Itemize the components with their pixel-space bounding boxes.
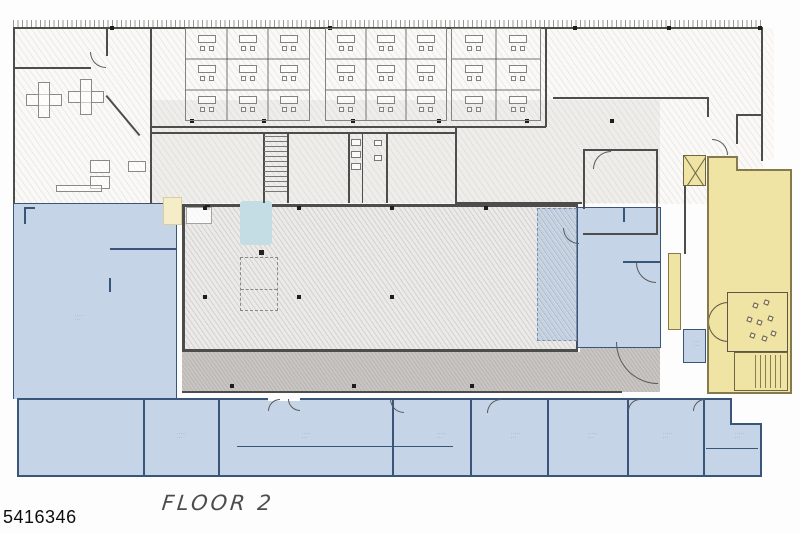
wall-segment xyxy=(456,202,582,204)
cubicle-cell xyxy=(186,90,227,120)
bottom-blue-suites xyxy=(17,399,762,477)
desk-icon xyxy=(377,96,395,104)
chair-icon xyxy=(241,46,246,51)
column-dot xyxy=(297,206,301,210)
column-dot xyxy=(610,119,614,123)
stair-tread xyxy=(264,161,287,162)
wall-segment xyxy=(348,132,350,203)
desk-icon xyxy=(377,35,395,43)
column-dot xyxy=(390,206,394,210)
chair-icon xyxy=(428,46,433,51)
cubicle-cell xyxy=(406,29,446,59)
chair-icon xyxy=(467,76,472,81)
yellow-wall-segment xyxy=(790,169,792,394)
partition-wall xyxy=(17,475,762,477)
wall-segment xyxy=(386,132,388,203)
desk-icon xyxy=(465,35,483,43)
furniture-icon xyxy=(56,185,102,192)
partition-wall xyxy=(110,248,177,250)
wall-segment xyxy=(583,149,585,209)
stair-tread xyxy=(264,166,287,167)
chair-icon xyxy=(476,46,481,51)
restroom-fixture-icon xyxy=(351,139,361,146)
wall-segment xyxy=(684,186,686,254)
wall-segment xyxy=(583,233,658,235)
stair-tread xyxy=(264,181,287,182)
wall-segment xyxy=(553,97,709,99)
chair-icon xyxy=(379,107,384,112)
furniture-icon xyxy=(90,160,110,173)
wall-segment xyxy=(583,149,658,151)
yellow-wall-segment xyxy=(707,156,709,394)
wall-segment xyxy=(13,27,15,203)
desk-icon xyxy=(377,65,395,73)
desk-icon xyxy=(417,96,435,104)
chair-icon xyxy=(282,107,287,112)
chair-icon xyxy=(428,107,433,112)
exterior-hatch-right xyxy=(763,28,774,160)
yellow-strip xyxy=(668,253,681,330)
chair-icon xyxy=(241,107,246,112)
stair-tread xyxy=(264,151,287,152)
chair-icon xyxy=(388,107,393,112)
chair-icon xyxy=(520,76,525,81)
column-dot xyxy=(667,26,671,30)
stair-tread xyxy=(264,141,287,142)
partition-wall xyxy=(547,400,549,476)
desk-icon xyxy=(417,35,435,43)
chair-icon xyxy=(282,46,287,51)
wall-segment xyxy=(150,126,546,128)
column-dot xyxy=(470,384,474,388)
cross-desk-icon xyxy=(68,79,104,115)
column-dot xyxy=(203,295,207,299)
stair-tread xyxy=(264,171,287,172)
column-dot xyxy=(230,384,234,388)
listing-number: 5416346 xyxy=(3,507,77,528)
wall-segment xyxy=(106,27,108,56)
partition-wall xyxy=(392,400,394,476)
partition-wall xyxy=(143,400,145,476)
chair-icon xyxy=(388,46,393,51)
chair-icon xyxy=(348,107,353,112)
desk-icon xyxy=(198,35,216,43)
chair-icon xyxy=(419,107,424,112)
partition-wall xyxy=(470,400,472,476)
chair-icon xyxy=(241,76,246,81)
wall-segment xyxy=(182,391,622,393)
chair-icon xyxy=(339,46,344,51)
chair-icon xyxy=(348,76,353,81)
chair-icon xyxy=(511,107,516,112)
partition-wall xyxy=(17,398,732,400)
chair-icon xyxy=(388,76,393,81)
partition-wall xyxy=(703,400,705,476)
chair-icon xyxy=(200,107,205,112)
wall-segment xyxy=(13,67,91,69)
cubicle-cell xyxy=(268,59,309,89)
chair-icon xyxy=(379,46,384,51)
partition-wall xyxy=(24,207,26,224)
cubicle-cell xyxy=(406,59,446,89)
stair-tread xyxy=(264,146,287,147)
desk-icon xyxy=(280,35,298,43)
chair-icon xyxy=(250,107,255,112)
desk-icon xyxy=(509,96,527,104)
desk-icon xyxy=(465,96,483,104)
cubicle-cell xyxy=(496,59,540,89)
cubicle-cell xyxy=(326,59,366,89)
partition-wall xyxy=(760,423,762,477)
left-blue-suite xyxy=(13,203,177,399)
cubicle-cell xyxy=(186,29,227,59)
chair-icon xyxy=(209,107,214,112)
cubicle-cell xyxy=(496,90,540,120)
yellow-wall-segment xyxy=(707,156,738,158)
desk-icon xyxy=(337,65,355,73)
cubicle-cell xyxy=(366,59,406,89)
chair-icon xyxy=(467,107,472,112)
restroom-fixture-icon xyxy=(374,155,382,161)
cubicle-cell xyxy=(227,90,268,120)
loading-band xyxy=(182,352,620,392)
chair-icon xyxy=(520,107,525,112)
kiosk-outline xyxy=(186,207,212,224)
elevator-icon xyxy=(683,155,706,186)
cubicle-cell xyxy=(366,90,406,120)
desk-icon xyxy=(239,96,257,104)
cubicle-cell xyxy=(452,29,496,59)
stair-tread xyxy=(264,156,287,157)
floor-label: FLOOR 2 xyxy=(161,491,275,515)
wall-segment xyxy=(263,132,265,203)
column-dot xyxy=(484,206,488,210)
dashed-equipment-outline xyxy=(240,257,278,311)
cubicle-cell xyxy=(406,90,446,120)
chair-icon xyxy=(339,107,344,112)
cubicle-cell xyxy=(326,29,366,59)
wall-segment xyxy=(287,132,289,203)
partition-wall xyxy=(623,207,625,222)
chair-icon xyxy=(476,107,481,112)
cubicle-cell xyxy=(186,59,227,89)
furniture-icon xyxy=(128,161,146,172)
column-dot xyxy=(573,26,577,30)
chair-icon xyxy=(379,76,384,81)
chair-icon xyxy=(209,76,214,81)
stair-tread xyxy=(264,186,287,187)
restroom-fixture-icon xyxy=(351,151,361,158)
desk-icon xyxy=(465,65,483,73)
chair-icon xyxy=(291,107,296,112)
partition-wall xyxy=(109,278,111,292)
wall-segment xyxy=(362,133,363,203)
partition-wall xyxy=(17,398,19,477)
cubicle-cell xyxy=(227,29,268,59)
chair-icon xyxy=(282,76,287,81)
chair-icon xyxy=(200,46,205,51)
wall-segment xyxy=(150,132,456,134)
column-dot xyxy=(203,206,207,210)
chair-icon xyxy=(200,76,205,81)
wall-segment xyxy=(736,114,738,144)
chair-icon xyxy=(209,46,214,51)
teal-equipment xyxy=(240,201,272,245)
chair-icon xyxy=(348,46,353,51)
chair-icon xyxy=(428,76,433,81)
desk-icon xyxy=(509,65,527,73)
cubicle-cell xyxy=(452,59,496,89)
stairs-icon xyxy=(734,352,788,391)
wall-segment xyxy=(736,114,763,116)
yellow-wall-segment xyxy=(736,169,792,171)
desk-icon xyxy=(509,35,527,43)
desk-icon xyxy=(239,35,257,43)
restroom-fixture-icon xyxy=(351,163,361,170)
restroom-fixture-icon xyxy=(374,140,382,146)
chair-icon xyxy=(250,46,255,51)
desk-icon xyxy=(198,65,216,73)
partition-wall xyxy=(218,400,220,476)
desk-icon xyxy=(417,65,435,73)
wall-segment xyxy=(545,27,547,127)
wall-segment xyxy=(656,149,658,235)
cubicle-cell xyxy=(496,29,540,59)
desk-icon xyxy=(337,96,355,104)
chair-icon xyxy=(520,46,525,51)
wall-segment xyxy=(707,97,709,117)
cross-desk-icon xyxy=(26,82,62,118)
column-dot xyxy=(758,26,762,30)
cubicle-cell xyxy=(268,29,309,59)
cubicle-cell xyxy=(326,90,366,120)
partition-wall xyxy=(730,398,732,425)
partition-wall xyxy=(627,400,629,476)
chair-icon xyxy=(339,76,344,81)
column-dot xyxy=(352,384,356,388)
stair-tread xyxy=(264,176,287,177)
equipment-dot xyxy=(259,250,264,255)
chair-icon xyxy=(476,76,481,81)
chair-icon xyxy=(291,46,296,51)
desk-icon xyxy=(280,96,298,104)
stair-tread xyxy=(264,191,287,192)
column-dot xyxy=(297,295,301,299)
partition-wall xyxy=(706,448,758,449)
chair-icon xyxy=(511,46,516,51)
wall-segment xyxy=(761,27,763,161)
cubicle-cell xyxy=(227,59,268,89)
stair-tread xyxy=(264,136,287,137)
cubicle-cell xyxy=(268,90,309,120)
yellow-wall-segment xyxy=(707,392,792,394)
desk-icon xyxy=(239,65,257,73)
desk-icon xyxy=(198,96,216,104)
desk-icon xyxy=(337,35,355,43)
pale-yellow-area xyxy=(163,197,182,225)
column-dot xyxy=(110,26,114,30)
partition-wall xyxy=(237,446,453,447)
chair-icon xyxy=(419,46,424,51)
partition-wall xyxy=(24,207,35,209)
partition-wall xyxy=(730,423,762,425)
chair-icon xyxy=(511,76,516,81)
chair-icon xyxy=(250,76,255,81)
cubicle-cell xyxy=(452,90,496,120)
cubicle-cell xyxy=(366,29,406,59)
floor-plan-stage: FLOOR 2 5416346 ····· ········ ········ … xyxy=(0,0,800,533)
chair-icon xyxy=(419,76,424,81)
desk-icon xyxy=(280,65,298,73)
wall-segment xyxy=(455,126,457,204)
wall-segment xyxy=(150,27,152,204)
column-dot xyxy=(390,295,394,299)
chair-icon xyxy=(467,46,472,51)
chair-icon xyxy=(291,76,296,81)
